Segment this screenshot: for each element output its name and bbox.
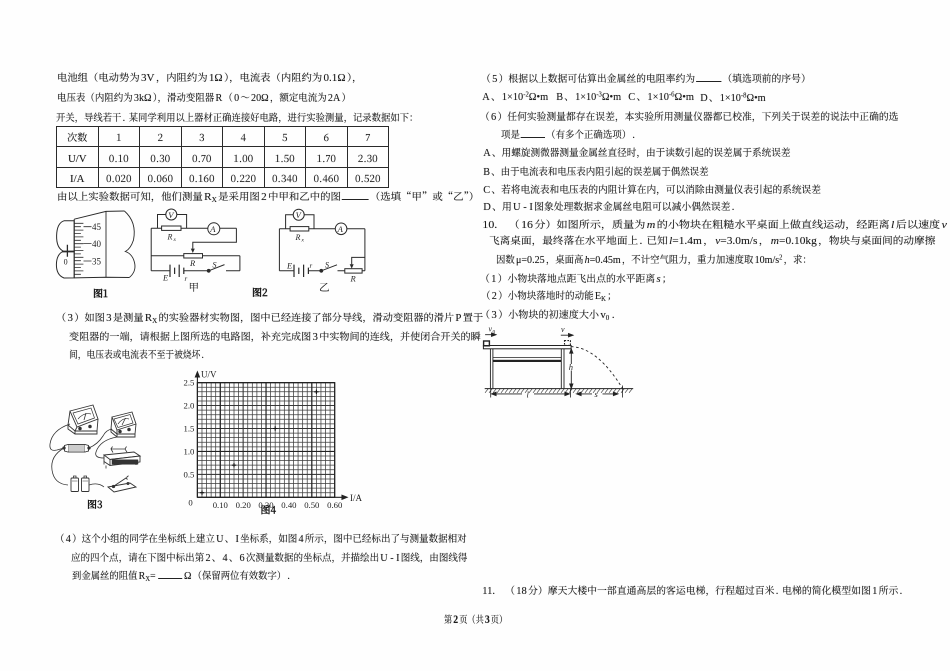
svg-text:I/A: I/A <box>350 493 362 503</box>
svg-text:E: E <box>286 261 293 271</box>
svg-text:乙: 乙 <box>319 280 330 295</box>
svg-text:图4: 图4 <box>261 502 277 517</box>
svg-text:r: r <box>310 262 313 270</box>
svg-text:0.40: 0.40 <box>281 500 297 510</box>
svg-text:S: S <box>213 260 217 269</box>
svg-text:E: E <box>162 273 169 283</box>
svg-text:0: 0 <box>188 498 193 508</box>
svg-text:A: A <box>209 224 216 234</box>
svg-text:2.5: 2.5 <box>184 378 195 388</box>
svg-text:A: A <box>337 224 344 234</box>
svg-text:0: 0 <box>64 258 68 267</box>
svg-text:45: 45 <box>92 222 102 232</box>
svg-text:1.5: 1.5 <box>184 424 195 434</box>
svg-text:R: R <box>189 258 196 268</box>
svg-text:V: V <box>296 210 303 220</box>
svg-text:V: V <box>168 210 175 220</box>
svg-text:2.0: 2.0 <box>184 401 196 411</box>
svg-text:x: x <box>301 238 305 244</box>
svg-text:1.0: 1.0 <box>184 446 196 456</box>
svg-text:S: S <box>325 261 329 270</box>
svg-text:0.10: 0.10 <box>213 500 229 510</box>
svg-text:甲: 甲 <box>189 280 200 295</box>
svg-text:0.5: 0.5 <box>184 469 195 479</box>
svg-text:R: R <box>350 274 357 284</box>
svg-text:0.60: 0.60 <box>327 500 343 510</box>
svg-text:l: l <box>527 389 530 399</box>
svg-text:40: 40 <box>92 239 102 249</box>
svg-text:35: 35 <box>92 257 102 267</box>
svg-text:v: v <box>561 325 565 334</box>
svg-text:U/V: U/V <box>201 370 217 380</box>
svg-text:x: x <box>173 237 177 243</box>
svg-text:R: R <box>167 233 173 242</box>
svg-text:0.50: 0.50 <box>304 500 320 510</box>
svg-text:R: R <box>295 233 301 242</box>
svg-text:0.20: 0.20 <box>236 500 252 510</box>
svg-text:h: h <box>569 362 573 372</box>
svg-text:r: r <box>185 275 188 283</box>
svg-text:s: s <box>595 389 599 399</box>
svg-text:图3: 图3 <box>87 496 103 511</box>
